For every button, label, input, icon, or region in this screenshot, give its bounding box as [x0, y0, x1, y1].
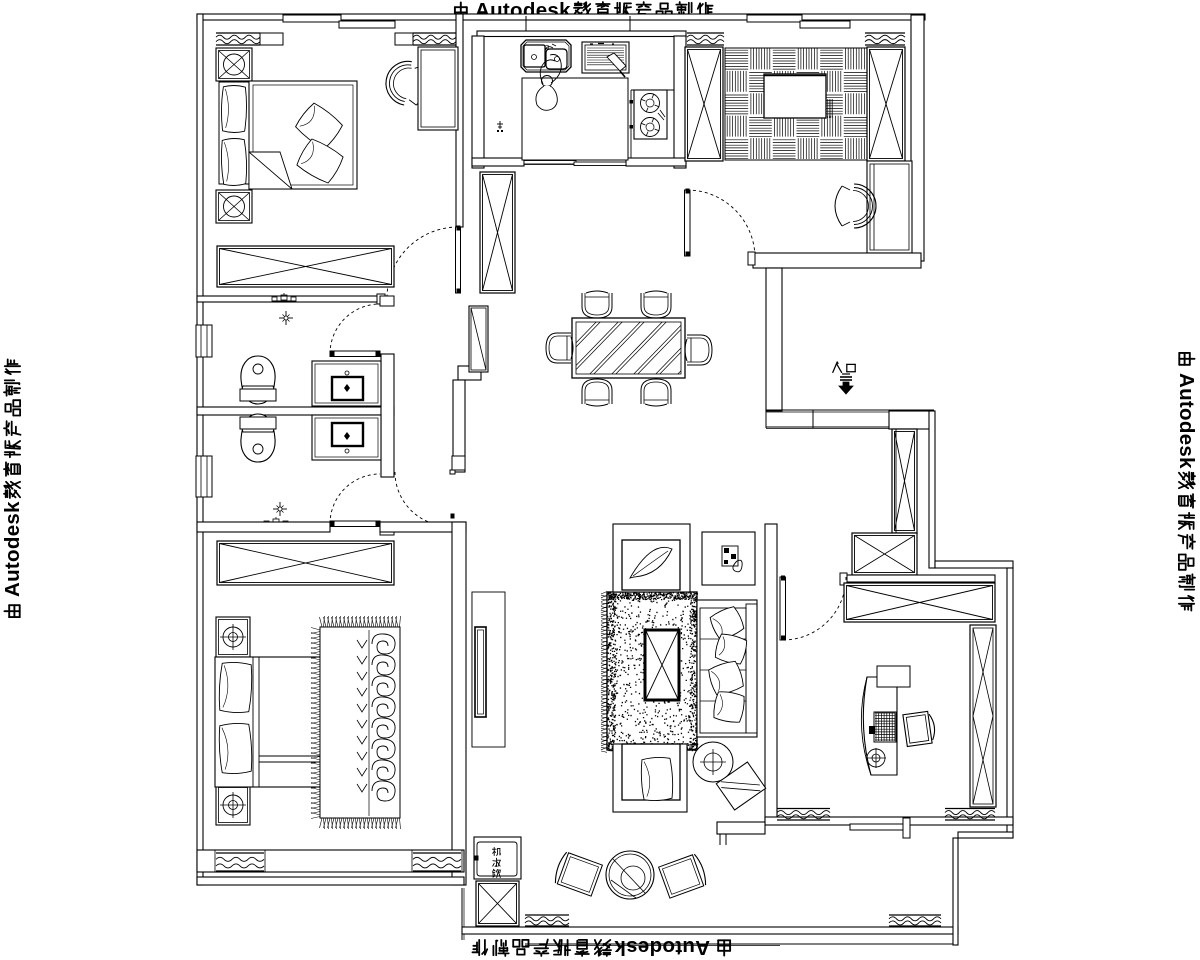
svg-text:Autodesk: Autodesk	[1175, 373, 1198, 469]
svg-text:Autodesk: Autodesk	[614, 936, 710, 959]
svg-text:Autodesk: Autodesk	[1, 501, 24, 597]
